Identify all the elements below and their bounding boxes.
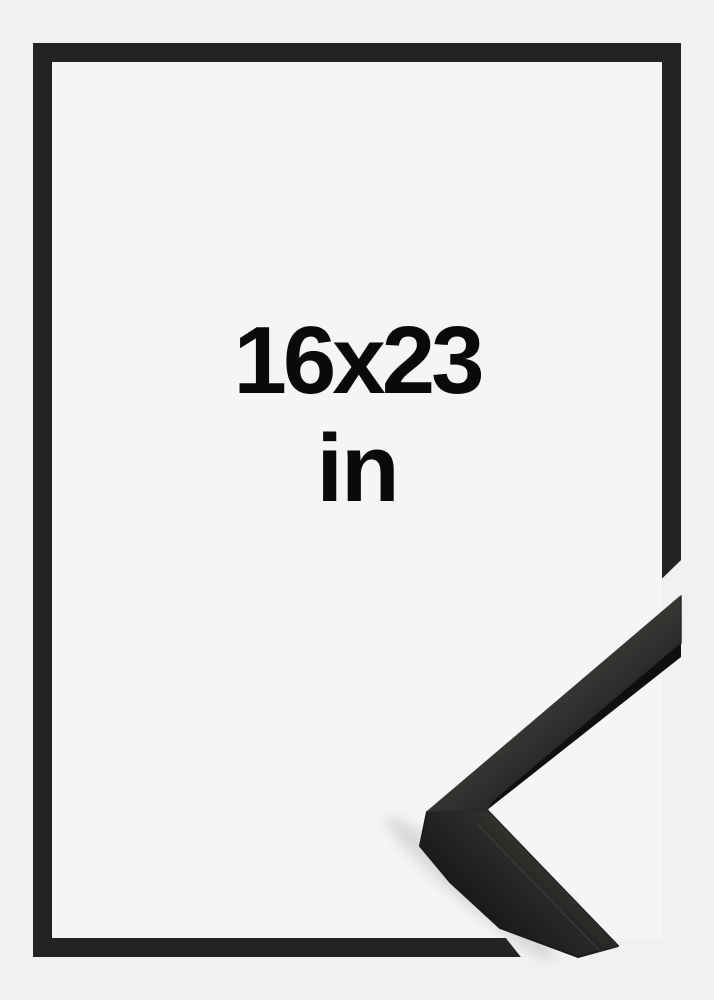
frame-size-value: 16x23 — [0, 311, 714, 411]
frame-size-unit: in — [0, 419, 714, 519]
product-image: 16x23 in — [0, 0, 714, 1000]
